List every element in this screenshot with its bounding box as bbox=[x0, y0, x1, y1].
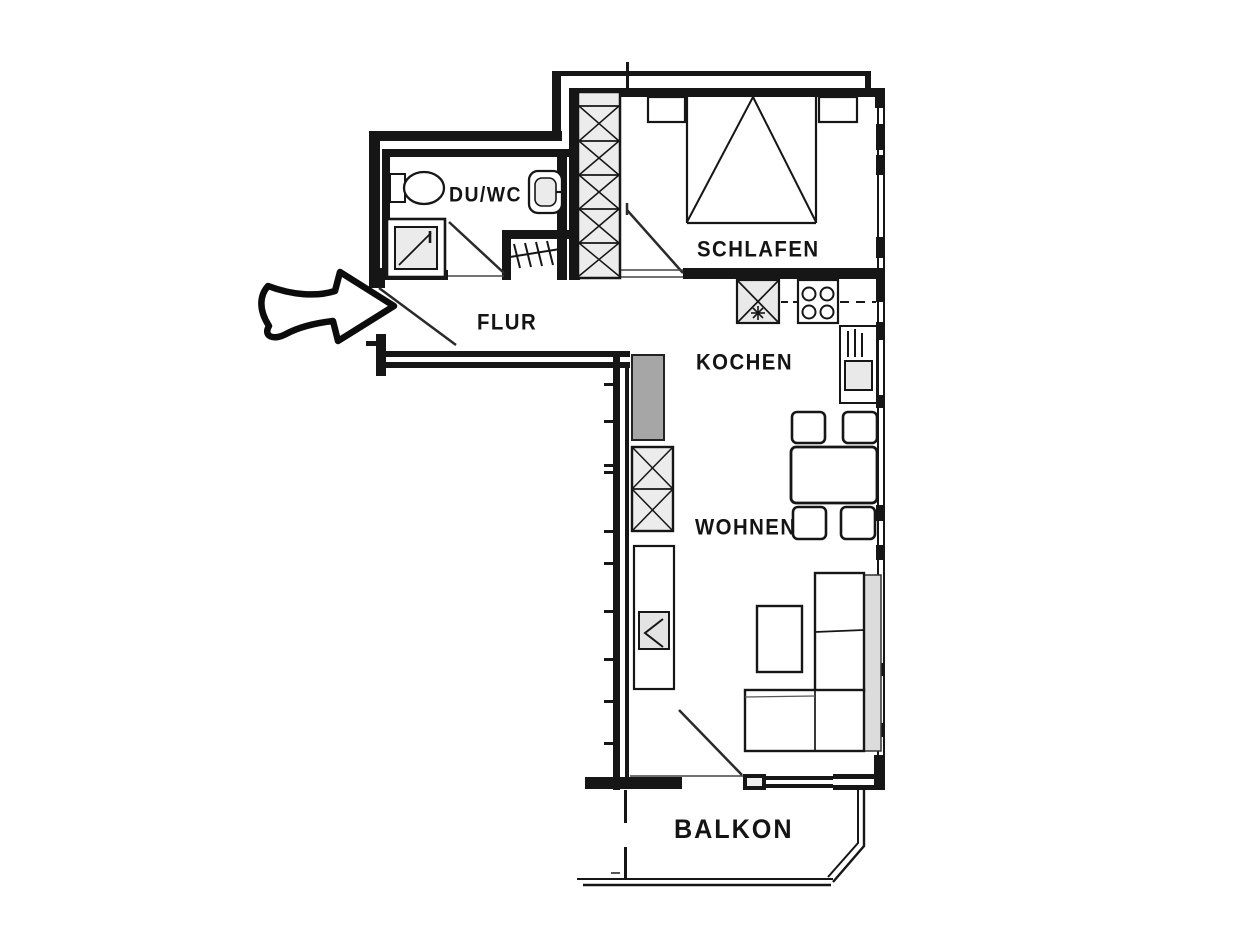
room-label-flur: FLUR bbox=[477, 311, 537, 336]
chair-icon bbox=[793, 507, 826, 539]
bathroom-door-leaf bbox=[449, 222, 504, 273]
chair-icon bbox=[841, 507, 875, 539]
balcony-door-leaf bbox=[679, 710, 742, 775]
floor-plan-canvas: DU/WC SCHLAFEN FLUR KOCHEN WOHNEN BALKON bbox=[0, 0, 1250, 938]
bed-icon bbox=[687, 97, 816, 223]
tv-icon bbox=[639, 612, 669, 649]
room-label-balkon: BALKON bbox=[674, 813, 794, 845]
tall-cabinet-icon bbox=[632, 355, 664, 440]
nightstand-icon bbox=[648, 97, 857, 122]
bedroom-door-leaf bbox=[627, 210, 683, 273]
toilet-icon bbox=[390, 172, 444, 204]
boiler-star-icon bbox=[751, 306, 765, 320]
stove-icon bbox=[798, 280, 838, 323]
kitchen-tall-unit-icon bbox=[840, 326, 877, 403]
coffee-table-icon bbox=[757, 606, 802, 672]
room-label-wohnen: WOHNEN bbox=[695, 516, 797, 541]
entrance-door-leaf bbox=[379, 288, 456, 345]
room-label-schlafen: SCHLAFEN bbox=[697, 238, 820, 263]
dining-table-icon bbox=[791, 447, 877, 503]
wardrobe-icon bbox=[578, 92, 620, 278]
chair-icon bbox=[843, 412, 877, 443]
shelf-closet-icon bbox=[632, 447, 673, 531]
wall-window-pier bbox=[743, 774, 766, 790]
washbasin-icon bbox=[529, 171, 564, 213]
room-label-kochen: KOCHEN bbox=[696, 351, 793, 376]
chair-icon bbox=[792, 412, 825, 443]
room-label-du-wc: DU/WC bbox=[449, 184, 522, 208]
floor-plan-drawing bbox=[0, 0, 1250, 938]
radiator-icon bbox=[510, 241, 560, 268]
shower-icon bbox=[387, 219, 445, 277]
doors bbox=[379, 203, 742, 775]
kitchen-sink-icon bbox=[737, 280, 779, 323]
